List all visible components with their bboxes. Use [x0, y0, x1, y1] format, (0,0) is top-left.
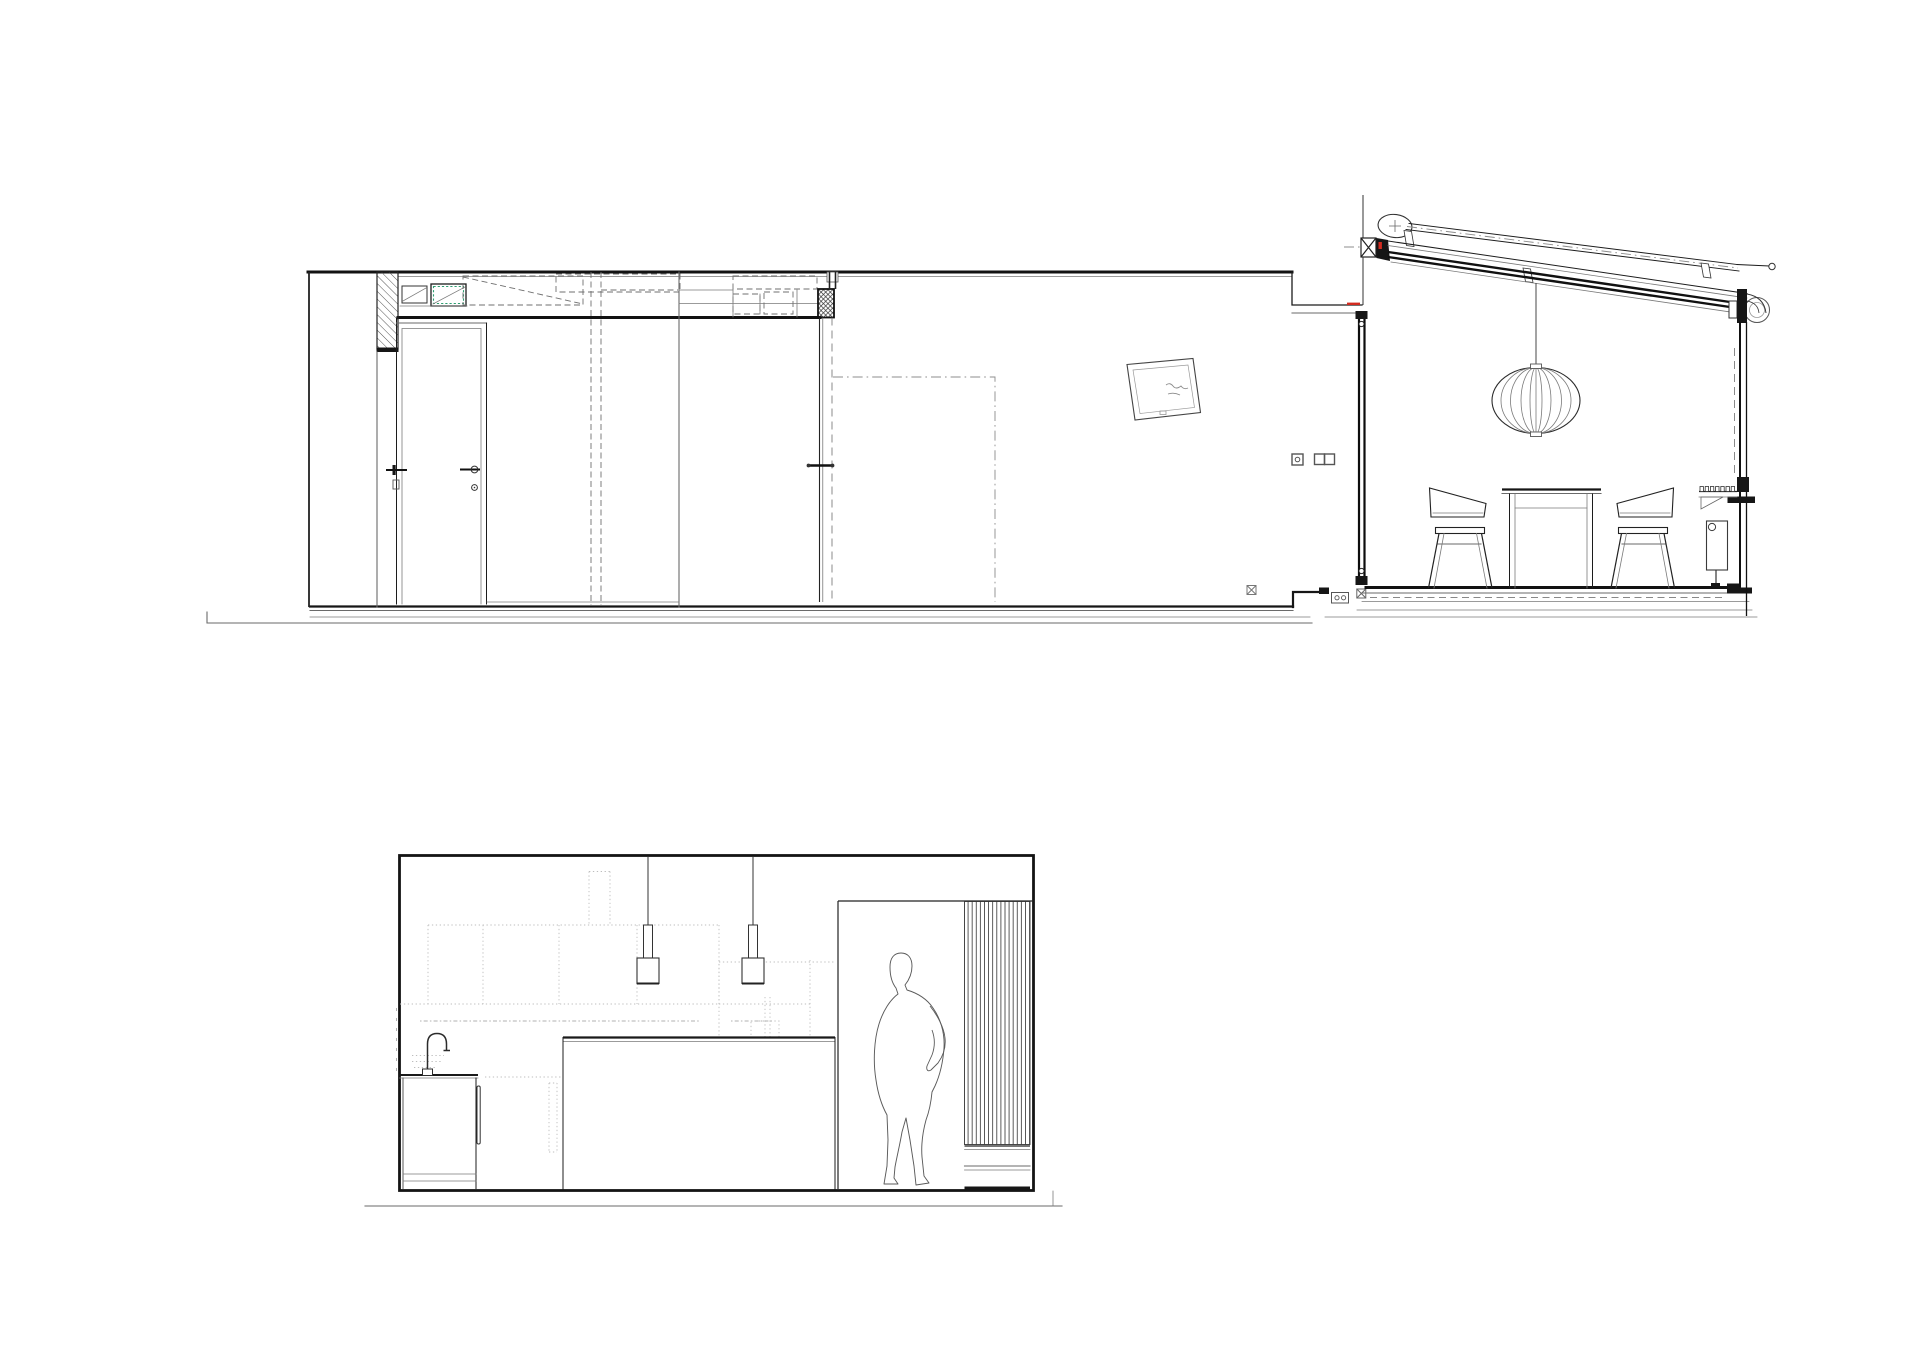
vertical-slat-screen — [965, 902, 1031, 1145]
projected-opening-dashdot — [833, 377, 995, 602]
pivot-door — [807, 318, 995, 603]
kitchen-elevation — [365, 856, 1062, 1207]
dashed-hatch-projection — [463, 276, 583, 305]
red-fixing-mark — [1379, 242, 1382, 249]
radiator — [1707, 521, 1728, 587]
ceiling-void-ducts — [400, 272, 838, 607]
floor-step — [1293, 592, 1321, 607]
floor-main — [310, 588, 1366, 618]
lintel-marker — [1361, 238, 1376, 257]
glazed-mullion — [1344, 195, 1376, 585]
roof-roller-box — [1729, 291, 1770, 323]
floor-level-marker — [1247, 586, 1256, 595]
dining-chair-right — [1611, 488, 1675, 588]
roof-deck — [1388, 241, 1747, 314]
ground-line — [365, 1191, 1062, 1206]
slat-bench — [965, 1146, 1031, 1191]
longitudinal-section — [207, 195, 1775, 623]
sink-base-cabinet — [400, 1075, 481, 1189]
kitchen-island — [563, 1038, 835, 1190]
pendant-lantern-lamp — [1492, 283, 1580, 437]
dashed-duct-drop — [591, 272, 601, 605]
dotted-extractor-duct — [589, 872, 610, 926]
leaning-picture-frame — [1127, 359, 1201, 421]
dining-table — [1502, 490, 1601, 589]
wall-socket — [1292, 454, 1303, 465]
interior-door — [386, 318, 679, 604]
cabinet-handle — [477, 1086, 480, 1144]
dining-chair-left — [1429, 488, 1493, 588]
pendant-lamp-right — [742, 857, 764, 984]
ground-line — [207, 612, 1757, 623]
pendant-lamp-left — [637, 857, 659, 984]
floor-extension — [1357, 584, 1752, 611]
drawing-sheet — [0, 0, 1920, 1358]
beam-crosshatch — [818, 289, 834, 318]
full-height-glazing — [1728, 289, 1756, 616]
door-handle — [386, 465, 480, 490]
gooseneck-faucet — [423, 1034, 451, 1076]
hatched-wall — [377, 272, 398, 349]
double-light-switch — [1315, 454, 1335, 465]
mono-pitch-roof — [1377, 213, 1776, 323]
border-frame — [400, 856, 1034, 1191]
dotted-tall-cabinets — [397, 872, 837, 1153]
left-wall — [309, 272, 399, 607]
person-silhouette — [874, 953, 945, 1185]
rail-supports — [1404, 231, 1711, 283]
transom-bar — [1728, 497, 1756, 504]
